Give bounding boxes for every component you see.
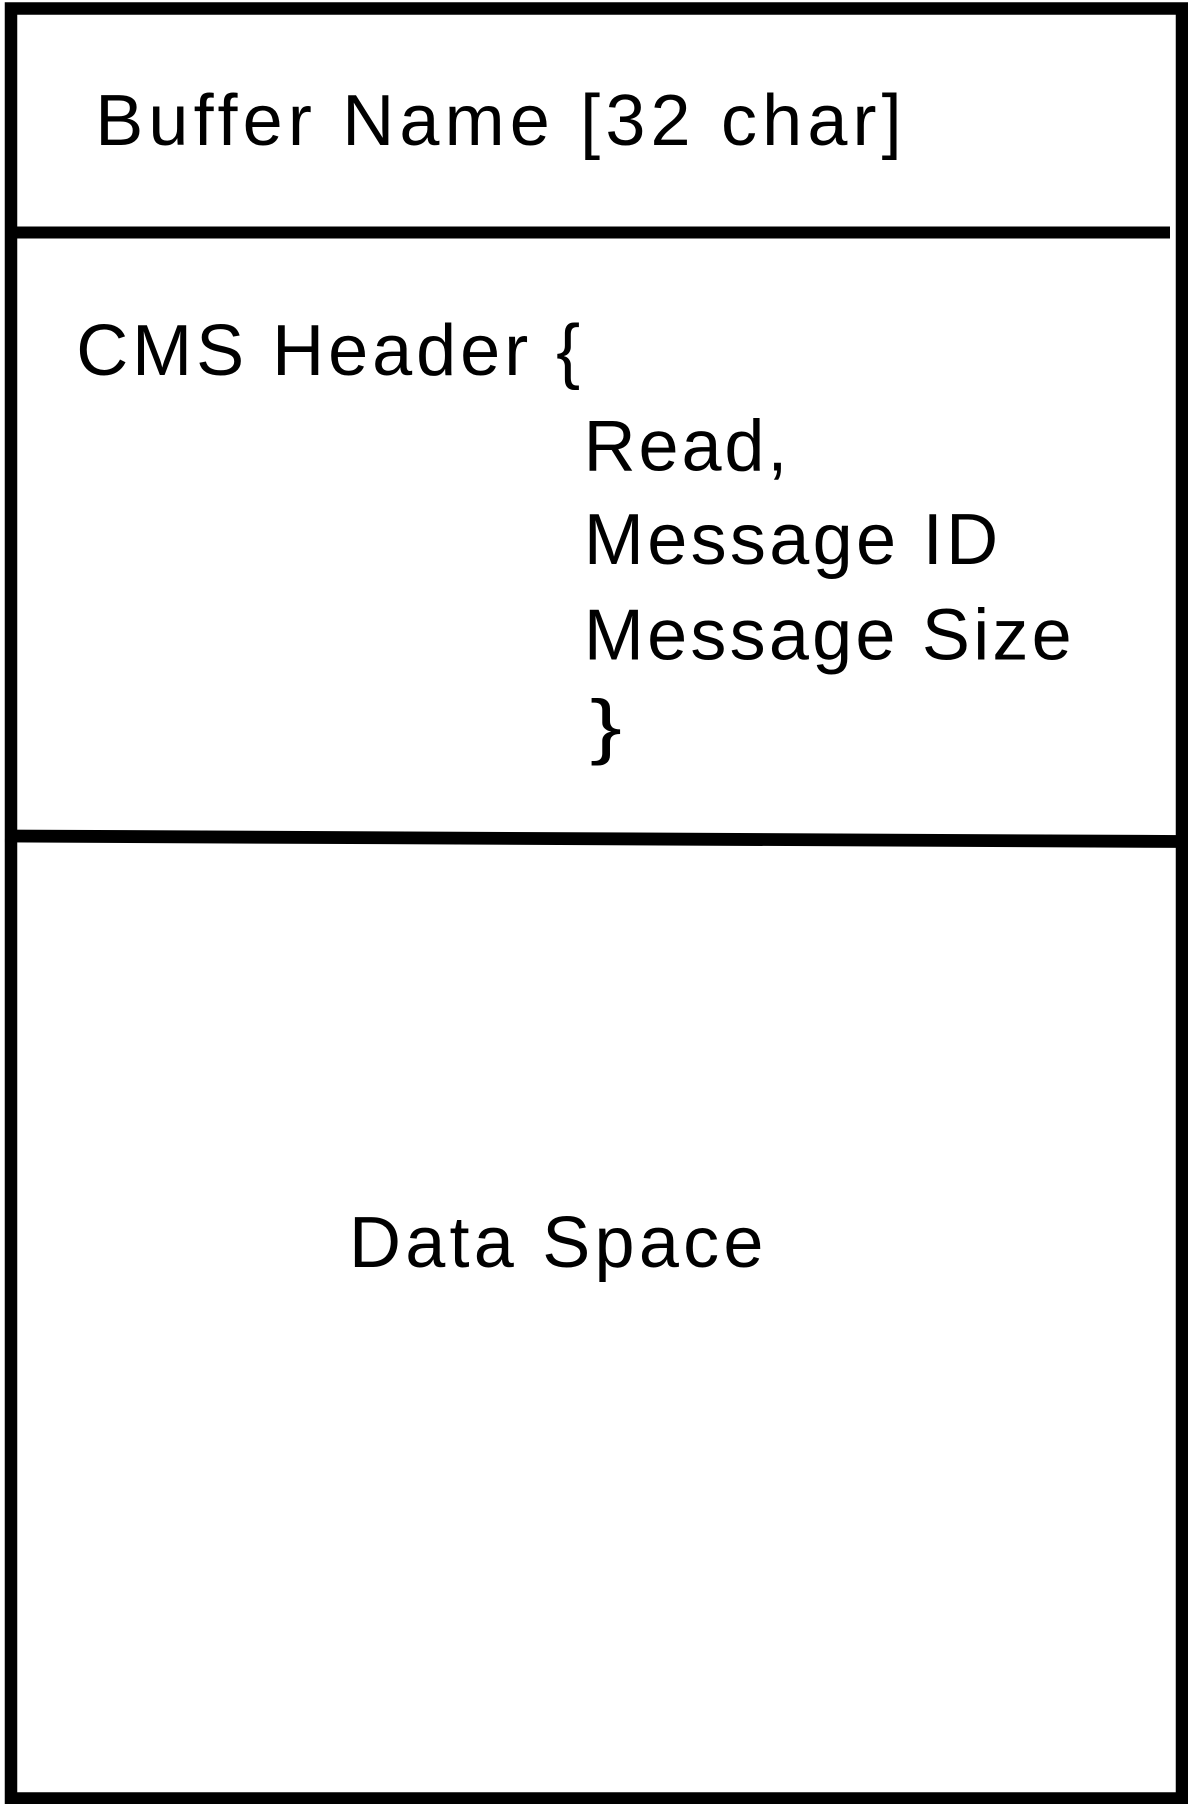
svg-text:Data Space: Data Space xyxy=(349,1203,763,1283)
svg-text:Buffer Name [32 char]: Buffer Name [32 char] xyxy=(95,81,902,161)
svg-text:CMS Header {: CMS Header { xyxy=(76,311,580,391)
svg-text:Message ID: Message ID xyxy=(584,500,998,580)
svg-text:}: } xyxy=(590,687,622,767)
svg-text:Message Size: Message Size xyxy=(584,596,1072,676)
svg-text:Read,: Read, xyxy=(584,406,788,486)
